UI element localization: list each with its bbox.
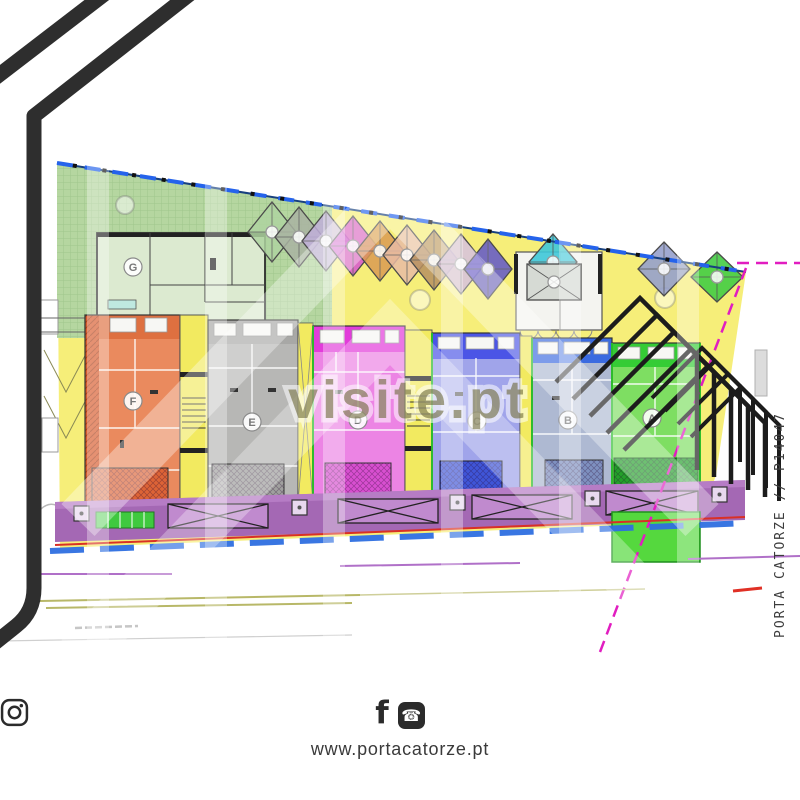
social-icons: f ☎ (0, 698, 800, 732)
unit-e-label: E (248, 417, 255, 429)
watermark-text: visite.pt (288, 370, 528, 430)
website-link[interactable]: www.portacatorze.pt (0, 739, 800, 760)
unit-f-label: F (130, 396, 137, 408)
phone-icon[interactable]: ☎ (398, 702, 425, 729)
project-reference: PORTA CATORZE // P14047 (773, 438, 788, 638)
footer: f ☎ www.portacatorze.pt (0, 698, 800, 760)
facebook-icon[interactable]: f (375, 698, 389, 728)
site-plan: G (0, 0, 800, 800)
logo-bar (755, 350, 767, 396)
instagram-icon[interactable] (0, 698, 29, 727)
unit-g-label: G (129, 262, 138, 274)
